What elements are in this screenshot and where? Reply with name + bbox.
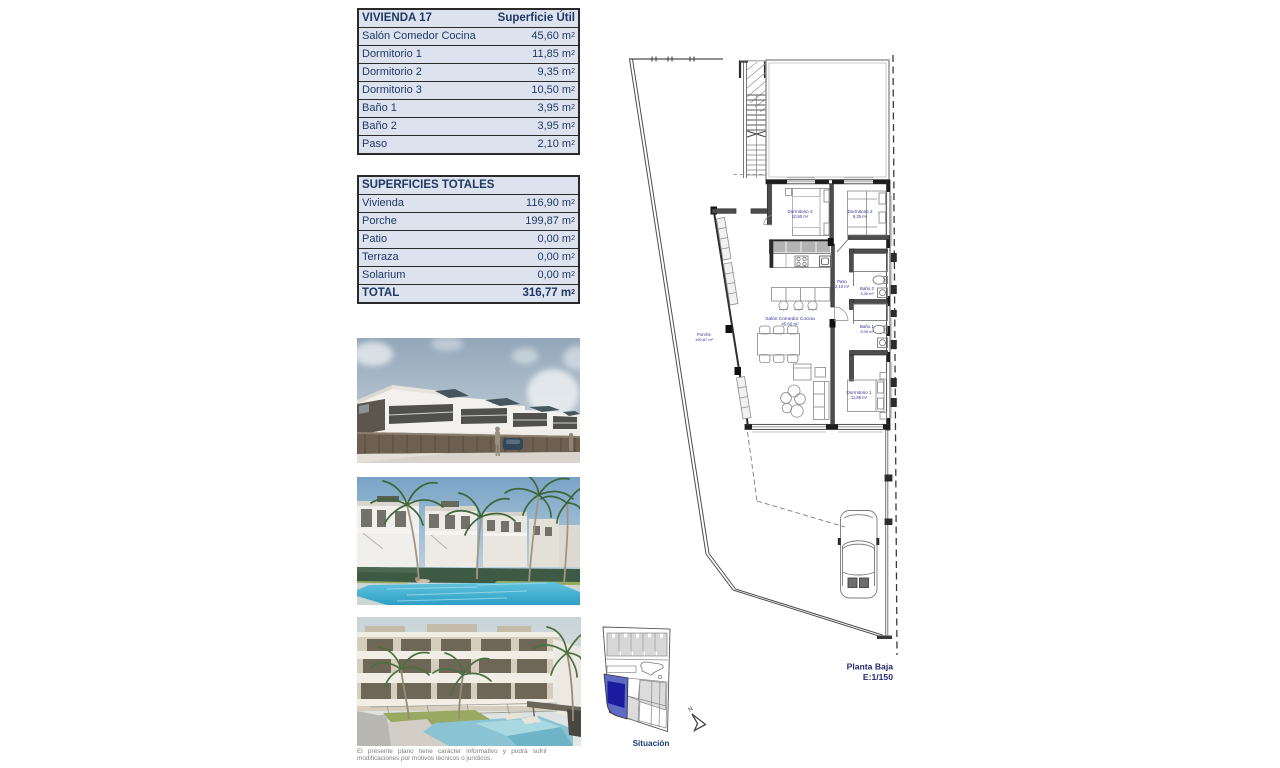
svg-text:9,35 m²: 9,35 m² — [853, 214, 868, 219]
svg-text:Planta Baja: Planta Baja — [847, 662, 894, 672]
svg-text:Situación: Situación — [633, 739, 670, 748]
svg-text:10,50 m²: 10,50 m² — [792, 214, 809, 219]
svg-text:3,95 m²: 3,95 m² — [860, 291, 874, 296]
svg-text:2,10 m²: 2,10 m² — [835, 284, 850, 289]
svg-text:N: N — [687, 706, 695, 714]
svg-text:45,60 m²: 45,60 m² — [781, 322, 799, 327]
svg-text:11,85 m²: 11,85 m² — [851, 395, 868, 400]
svg-text:3,95 m²: 3,95 m² — [860, 329, 874, 334]
svg-text:E:1/150: E:1/150 — [863, 672, 893, 682]
svg-text:199,87 m²: 199,87 m² — [695, 337, 714, 342]
